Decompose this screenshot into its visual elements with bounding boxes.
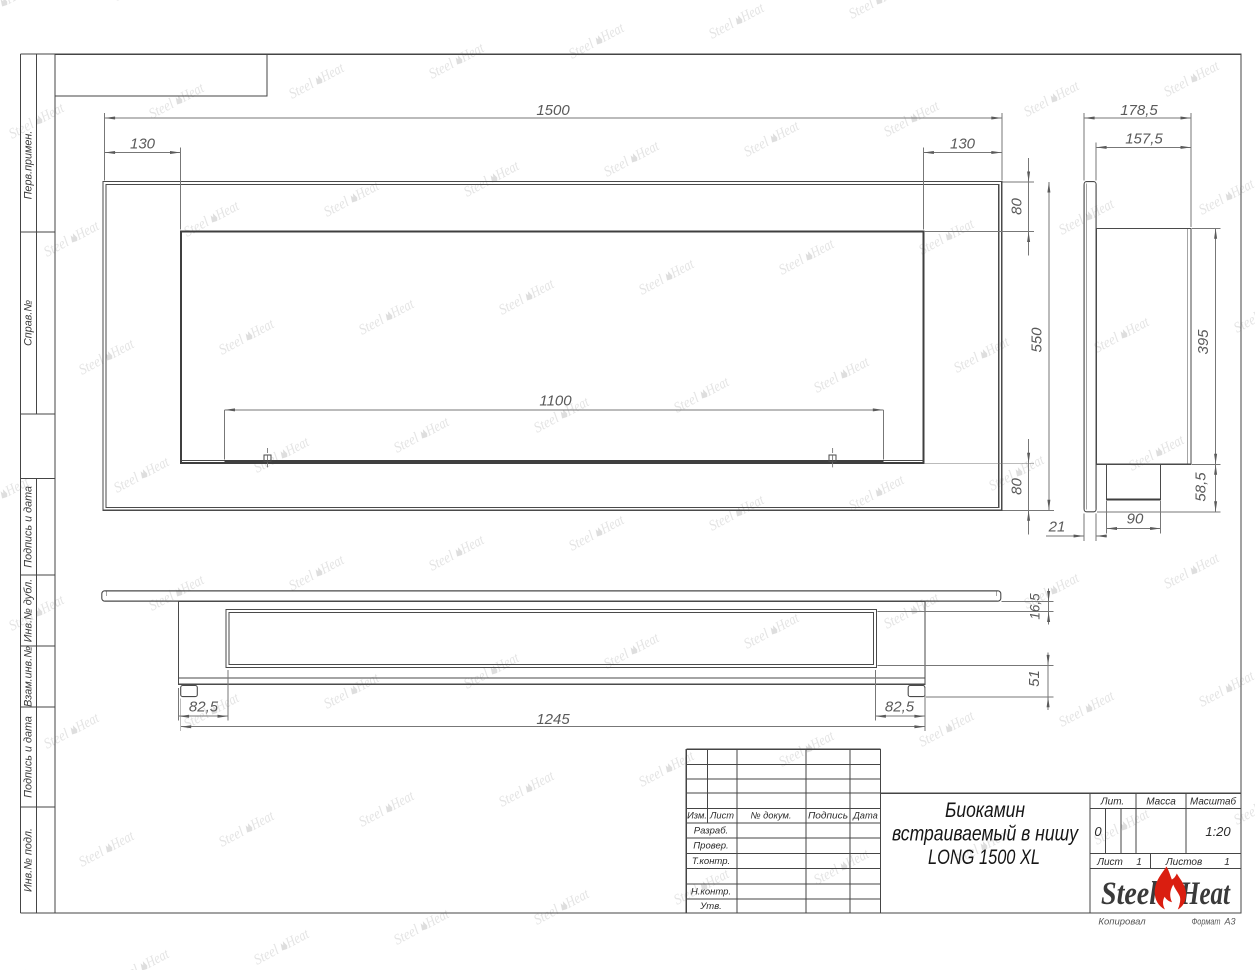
svg-text:Лит.: Лит. xyxy=(1100,797,1124,808)
svg-text:Инв.№ дубл.: Инв.№ дубл. xyxy=(23,579,35,642)
svg-text:Лист: Лист xyxy=(709,811,734,821)
svg-text:Масштаб: Масштаб xyxy=(1190,796,1236,808)
svg-text:1: 1 xyxy=(1224,857,1230,868)
svg-text:157,5: 157,5 xyxy=(1125,131,1163,148)
svg-text:1: 1 xyxy=(1136,857,1142,868)
svg-text:80: 80 xyxy=(1009,478,1026,495)
svg-text:Провер.: Провер. xyxy=(693,841,728,852)
svg-text:Перв.примен.: Перв.примен. xyxy=(23,131,35,200)
svg-text:Взам.инв.№: Взам.инв.№ xyxy=(23,646,35,707)
svg-text:Листов: Листов xyxy=(1165,857,1202,868)
svg-text:16,5: 16,5 xyxy=(1028,593,1043,620)
svg-text:Биокамин: Биокамин xyxy=(945,798,1025,822)
svg-text:Утв.: Утв. xyxy=(699,901,722,912)
svg-text:21: 21 xyxy=(1048,519,1066,536)
svg-text:80: 80 xyxy=(1009,198,1026,215)
svg-text:Т.контр.: Т.контр. xyxy=(692,856,730,867)
svg-text:Подпись и дата: Подпись и дата xyxy=(23,716,35,798)
svg-text:Heat: Heat xyxy=(1179,876,1230,912)
svg-text:№ докум.: № докум. xyxy=(751,811,792,821)
svg-text:А3: А3 xyxy=(1223,917,1235,927)
svg-text:1100: 1100 xyxy=(539,393,572,410)
svg-text:Изм.: Изм. xyxy=(687,811,707,821)
svg-text:Н.контр.: Н.контр. xyxy=(691,887,731,898)
svg-text:58,5: 58,5 xyxy=(1193,472,1210,502)
svg-text:90: 90 xyxy=(1127,511,1144,528)
svg-text:82,5: 82,5 xyxy=(885,699,915,716)
svg-text:Steel: Steel xyxy=(1101,876,1158,912)
svg-text:встраиваемый в нишу: встраиваемый в нишу xyxy=(892,822,1079,846)
svg-text:Подпись: Подпись xyxy=(808,811,848,821)
svg-text:Лист: Лист xyxy=(1096,857,1123,868)
svg-text:82,5: 82,5 xyxy=(189,699,219,716)
svg-text:395: 395 xyxy=(1195,329,1212,355)
svg-text:1245: 1245 xyxy=(536,711,570,728)
svg-text:Копировал: Копировал xyxy=(1098,917,1146,928)
svg-text:178,5: 178,5 xyxy=(1120,102,1158,119)
svg-text:1500: 1500 xyxy=(536,102,570,119)
svg-text:Формат: Формат xyxy=(1192,917,1221,927)
svg-text:Разраб.: Разраб. xyxy=(694,826,728,837)
svg-text:Подпись и дата: Подпись и дата xyxy=(23,486,35,568)
svg-text:0: 0 xyxy=(1094,824,1102,839)
svg-text:550: 550 xyxy=(1029,327,1046,353)
svg-text:LONG 1500 XL: LONG 1500 XL xyxy=(928,845,1040,869)
svg-text:Инв.№ подл.: Инв.№ подл. xyxy=(23,828,35,892)
svg-text:130: 130 xyxy=(130,136,156,153)
svg-text:Справ.№: Справ.№ xyxy=(23,300,35,346)
svg-text:Дата: Дата xyxy=(852,811,878,821)
svg-text:130: 130 xyxy=(950,136,976,153)
svg-text:Масса: Масса xyxy=(1146,797,1176,808)
svg-text:51: 51 xyxy=(1026,670,1043,687)
svg-text:1:20: 1:20 xyxy=(1205,824,1231,839)
